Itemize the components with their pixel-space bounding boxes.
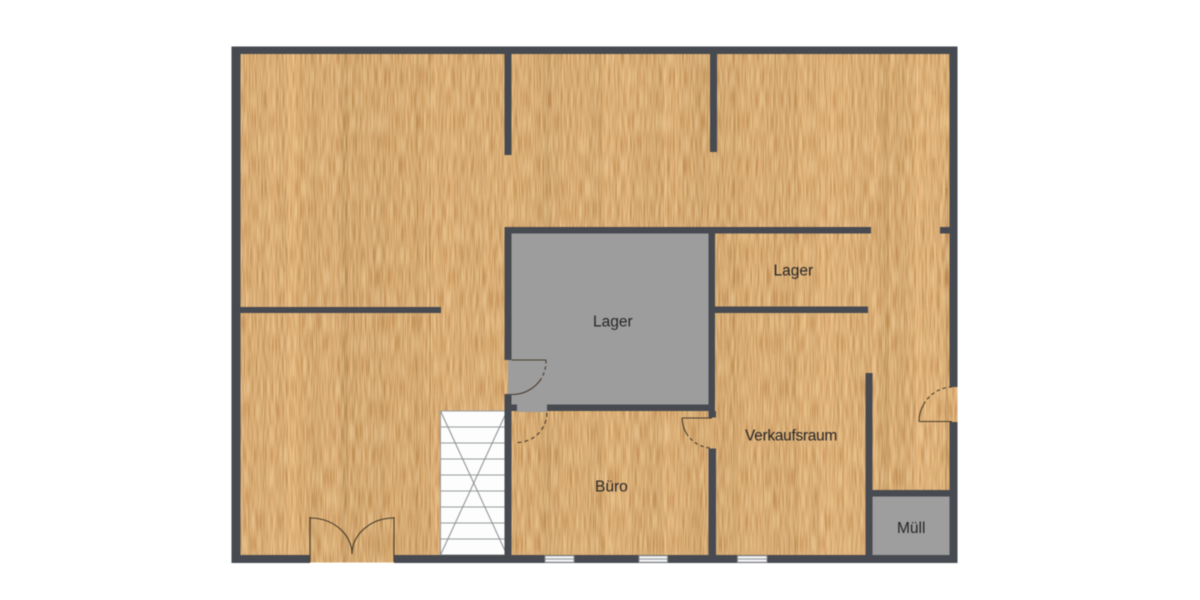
svg-text:Lager: Lager [593,314,633,331]
svg-text:Verkaufsraum: Verkaufsraum [745,428,837,445]
svg-text:Lager: Lager [774,263,814,280]
svg-text:Büro: Büro [595,479,628,496]
svg-text:Müll: Müll [897,520,925,537]
